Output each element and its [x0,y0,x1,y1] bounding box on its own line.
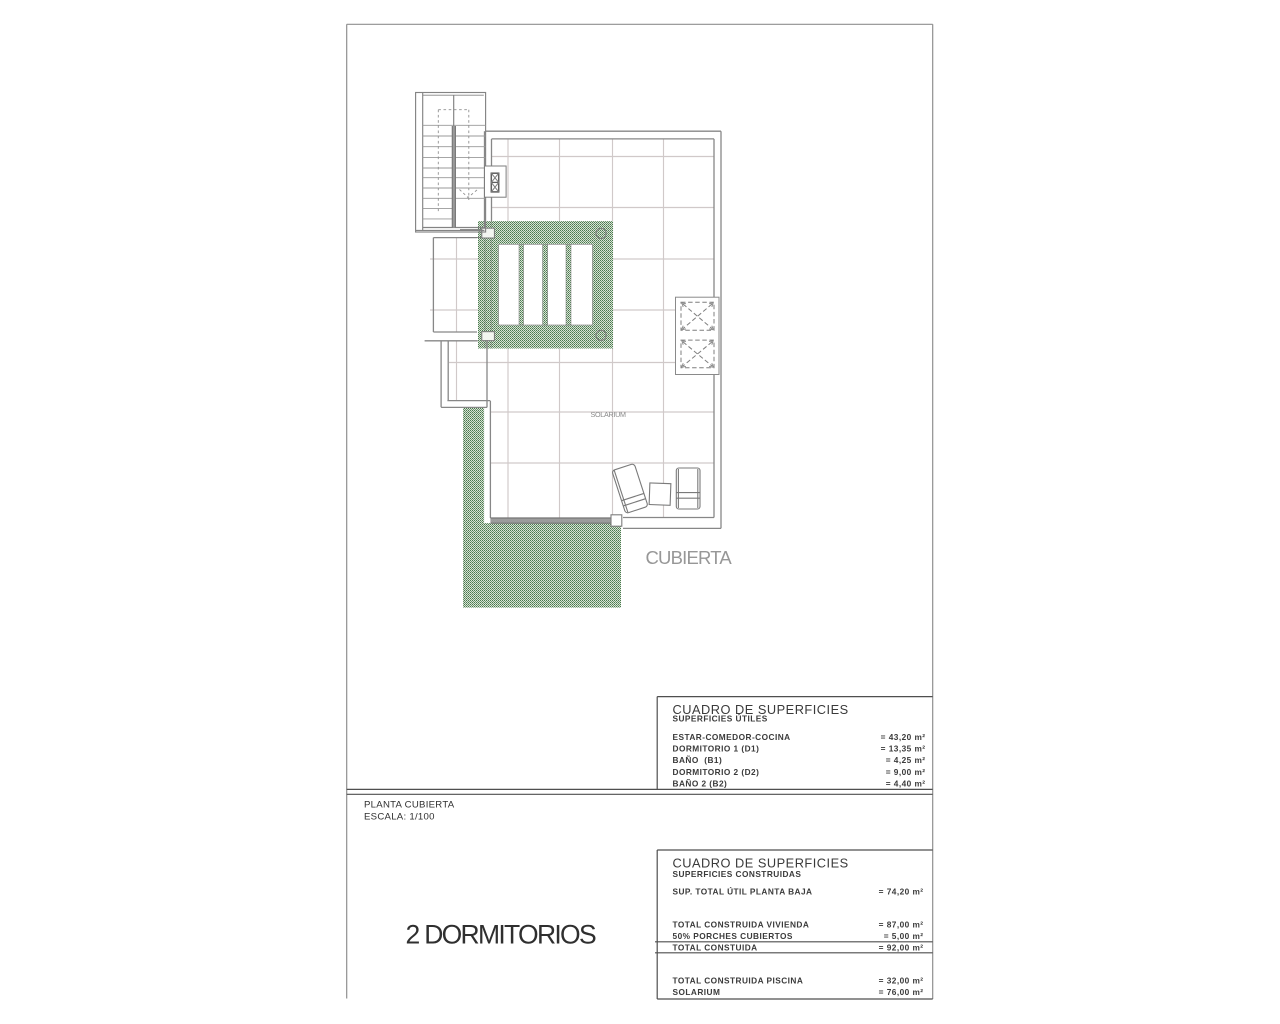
svg-text:TOTAL CONSTUIDA: TOTAL CONSTUIDA [673,943,758,953]
svg-text:TOTAL CONSTRUIDA VIVIENDA: TOTAL CONSTRUIDA VIVIENDA [673,920,810,930]
svg-text:ESCALA: 1/100: ESCALA: 1/100 [364,812,435,823]
svg-text:= 32,00 m²: = 32,00 m² [879,976,924,986]
svg-text:SUP. TOTAL ÚTIL PLANTA BAJA: SUP. TOTAL ÚTIL PLANTA BAJA [673,886,813,897]
svg-text:TOTAL CONSTRUIDA PISCINA: TOTAL CONSTRUIDA PISCINA [673,976,804,986]
svg-text:= 5,00 m²: = 5,00 m² [884,931,924,941]
svg-text:= 74,20 m²: = 74,20 m² [879,887,924,897]
svg-text:SUPERFICIES CONSTRUIDAS: SUPERFICIES CONSTRUIDAS [673,869,802,879]
svg-text:BAÑO (B1): BAÑO (B1) [673,755,723,765]
svg-text:= 87,00 m²: = 87,00 m² [879,920,924,930]
svg-text:DORMITORIO 2 (D2): DORMITORIO 2 (D2) [673,767,760,777]
svg-text:2 DORMITORIOS: 2 DORMITORIOS [406,919,596,949]
svg-text:DORMITORIO 1 (D1): DORMITORIO 1 (D1) [673,744,760,754]
svg-text:= 4,40 m²: = 4,40 m² [886,778,926,788]
svg-text:= 76,00 m²: = 76,00 m² [879,987,924,997]
svg-text:= 92,00 m²: = 92,00 m² [879,943,924,953]
svg-text:PLANTA CUBIERTA: PLANTA CUBIERTA [364,800,455,811]
svg-text:= 9,00 m²: = 9,00 m² [886,767,926,777]
svg-text:= 43,20 m²: = 43,20 m² [881,732,926,742]
svg-text:= 4,25 m²: = 4,25 m² [886,755,926,765]
svg-text:CUBIERTA: CUBIERTA [646,547,733,568]
svg-text:= 13,35 m²: = 13,35 m² [881,744,926,754]
svg-text:BAÑO 2 (B2): BAÑO 2 (B2) [673,778,728,788]
svg-text:SUPERFICIES ÚTILES: SUPERFICIES ÚTILES [673,713,768,724]
svg-text:50% PORCHES CUBIERTOS: 50% PORCHES CUBIERTOS [673,931,793,941]
svg-text:ESTAR-COMEDOR-COCINA: ESTAR-COMEDOR-COCINA [673,732,791,742]
svg-text:SOLARIUM: SOLARIUM [673,987,721,997]
svg-text:SOLARIUM: SOLARIUM [591,410,626,419]
